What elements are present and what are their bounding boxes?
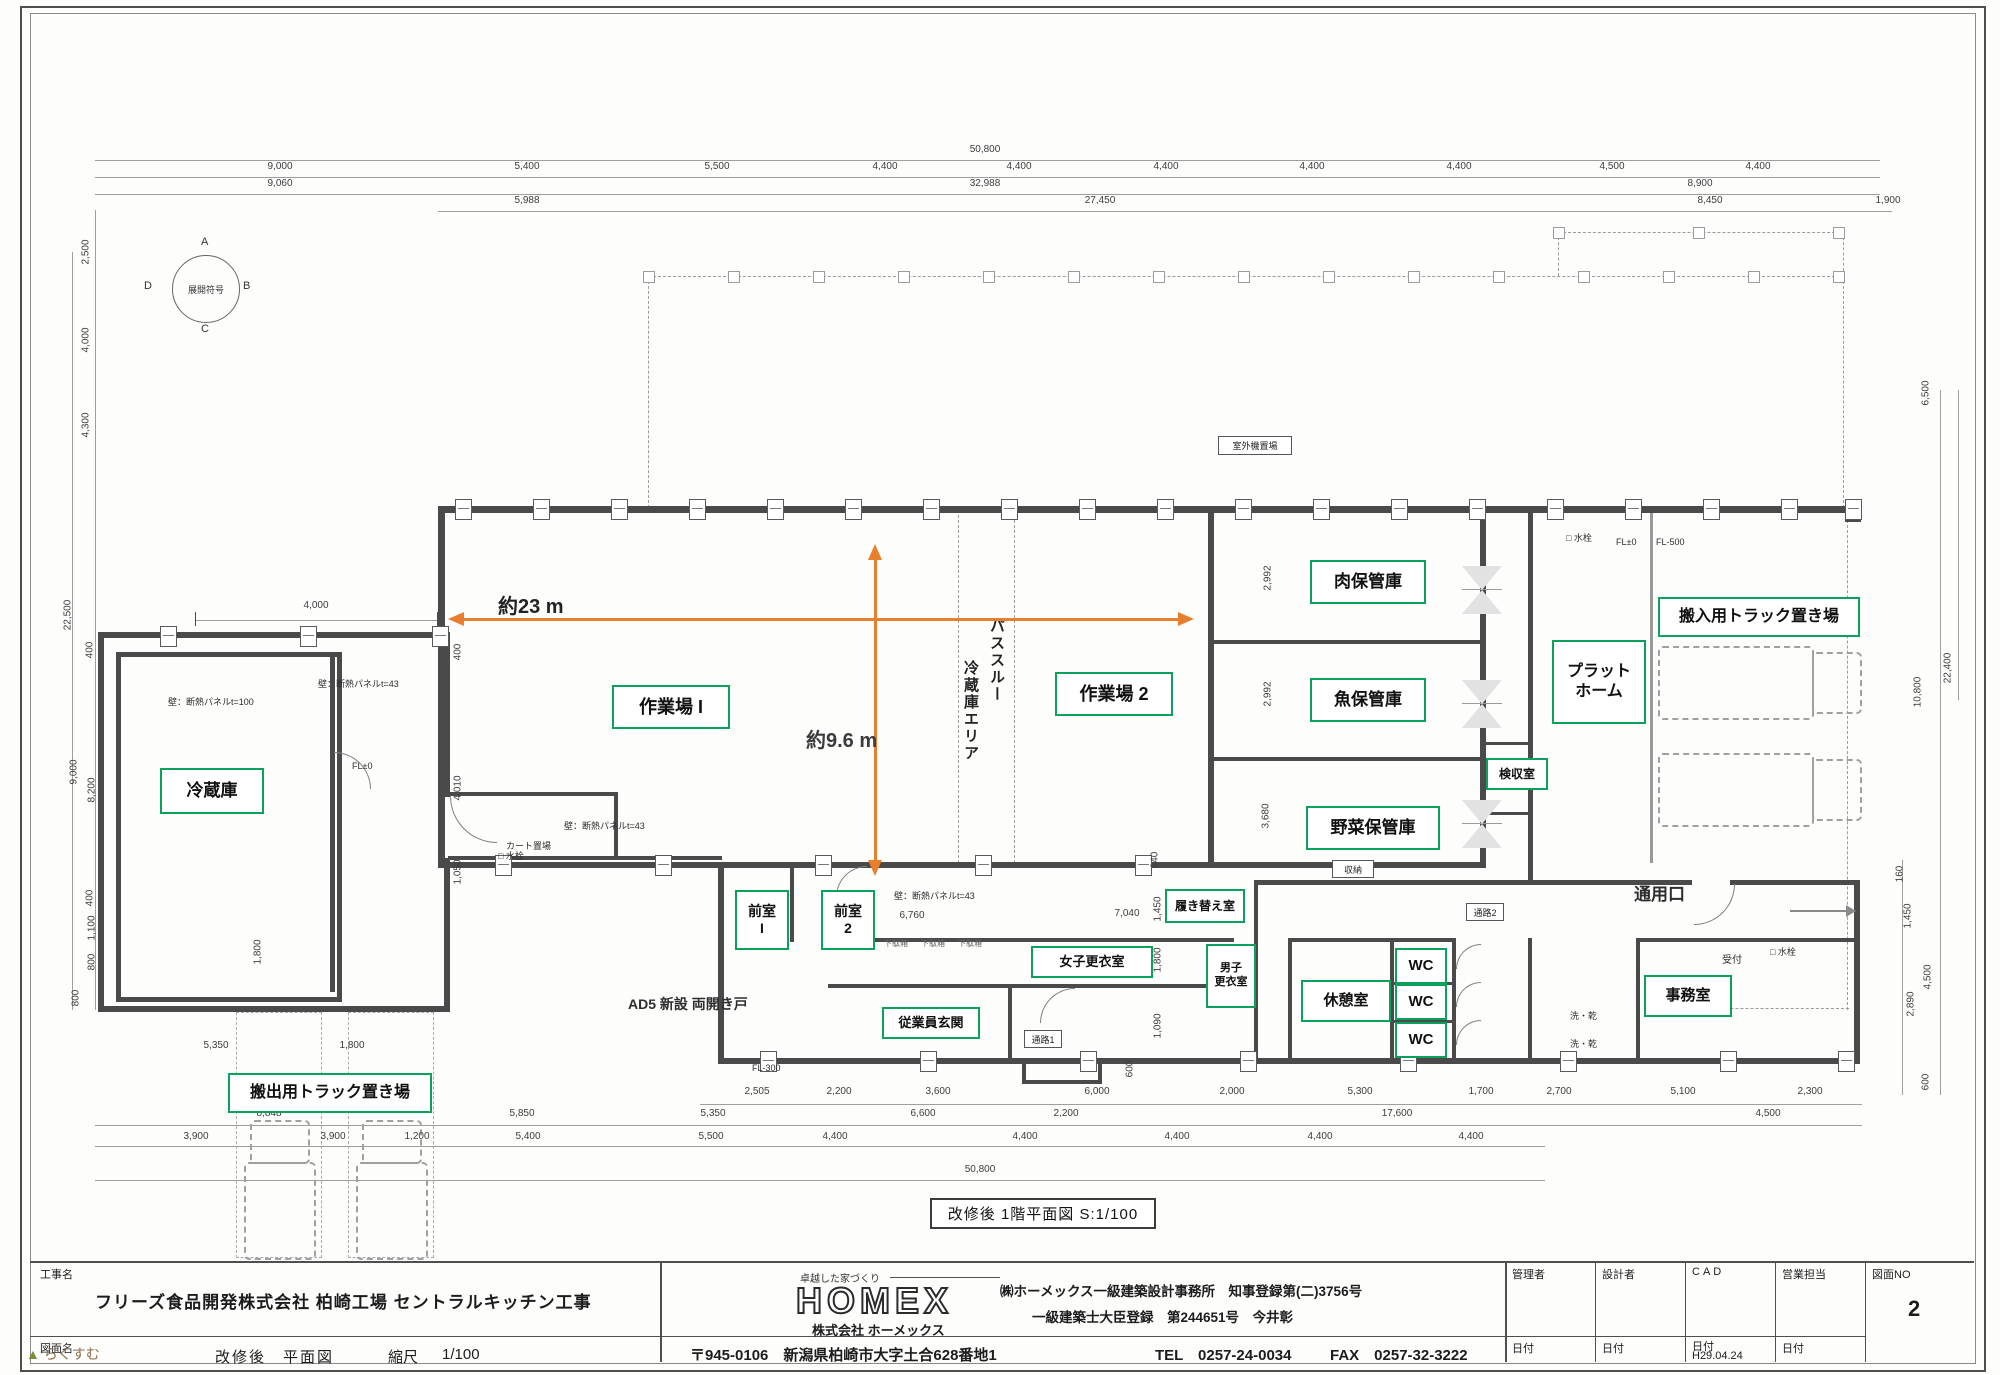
wall: [1636, 938, 1640, 1060]
wall: [98, 632, 104, 1012]
dimension-value: 4,400: [1446, 161, 1471, 172]
dimension-value: 1,050: [453, 859, 464, 884]
column-mark-icon: [1845, 499, 1862, 520]
canopy-post-icon: [983, 271, 995, 283]
dimension-value: 1,450: [1903, 903, 1914, 928]
column-mark-icon: [1560, 1051, 1577, 1072]
dimension-value: 50,800: [965, 1164, 996, 1175]
dock-edge-line: [1650, 513, 1653, 863]
drawing-sheet: 展開符号 A B C D 約23 m 約9.6 m パススルー 冷蔵庫エリア 改…: [0, 0, 2000, 1375]
dimension-value: 2,200: [826, 1086, 851, 1097]
dimension-line: [95, 1125, 1862, 1126]
dimension-value: 5,500: [698, 1131, 723, 1142]
dimension-value: 1,700: [1468, 1086, 1493, 1097]
room-label: 肉保管庫: [1310, 560, 1426, 604]
dimension-value: 400: [453, 644, 464, 661]
column-mark-icon: [1079, 499, 1096, 520]
wall: [438, 862, 1228, 868]
text-label: 壁：断熱パネルt=43: [564, 822, 645, 832]
project-name-label: 工事名: [40, 1266, 73, 1282]
dimension-line: [1902, 860, 1903, 1095]
dimension-value: 8,450: [1697, 195, 1722, 206]
canopy-post-icon: [813, 271, 825, 283]
canopy-post-icon: [1833, 227, 1845, 239]
column-mark-icon: [1240, 1051, 1257, 1072]
registration-line-2: 一級建築士大臣登録 第244651号 今井彰: [1032, 1306, 1293, 1326]
dimension-value: 1,100: [87, 915, 98, 940]
canopy-post-icon: [1323, 271, 1335, 283]
column-mark-icon: [689, 499, 706, 520]
dimension-value: 1,450: [1153, 896, 1164, 921]
pass-door-icon: [1462, 800, 1502, 824]
homex-logo: HOMEX: [796, 1280, 953, 1322]
dimension-value: 4,500: [1755, 1108, 1780, 1119]
dimension-value: 4,400: [1299, 161, 1324, 172]
text-label: □ 水栓: [498, 852, 524, 862]
room-label: 冷蔵庫: [160, 768, 264, 814]
dimension-value: 3,900: [320, 1131, 345, 1142]
truck-outline-icon: [356, 1162, 428, 1260]
drawing-caption: 改修後 1階平面図 S:1/100: [930, 1198, 1156, 1229]
wall: [790, 862, 794, 942]
tb-date-row-line: [1505, 1336, 1865, 1337]
column-mark-icon: [815, 855, 832, 876]
tb-col-line-4: [1865, 1261, 1866, 1362]
wall: [98, 632, 450, 638]
dimension-value: 5,500: [704, 161, 729, 172]
text-label: FL±0: [1616, 538, 1636, 548]
wall: [1008, 984, 1012, 1060]
dimension-value: 160: [1895, 866, 1906, 883]
dimension-value: 600: [1921, 1074, 1932, 1091]
room-label: 検収室: [1486, 758, 1548, 790]
height-measure-arrow: [874, 558, 877, 862]
dimension-value: 50,800: [970, 144, 1001, 155]
wall: [718, 862, 724, 1064]
room-label: 事務室: [1644, 975, 1732, 1017]
dimension-value: 1,800: [253, 939, 264, 964]
text-label: 壁：断熱パネルt=43: [318, 680, 399, 690]
pass-door-icon: [1462, 704, 1502, 728]
dimension-line: [700, 1104, 1862, 1105]
text-label: 通用口: [1634, 886, 1685, 905]
wall: [98, 1006, 450, 1012]
wall: [1528, 938, 1532, 1060]
width-measure-label: 約23 m: [498, 590, 564, 619]
tb-role-1: 管理者: [1512, 1266, 1545, 1282]
tb-date-1: 日付: [1512, 1340, 1534, 1356]
titleblock-divider-1: [660, 1261, 662, 1362]
dimension-value: 2,992: [1263, 681, 1274, 706]
dimension-value: 4,500: [1923, 964, 1934, 989]
room-label: 前室 I: [735, 890, 789, 950]
canopy-post-icon: [1153, 271, 1165, 283]
dimension-value: 4,500: [1599, 161, 1624, 172]
dimension-value: 5,400: [515, 1131, 540, 1142]
canopy-post-icon: [1408, 271, 1420, 283]
dimension-value: 32,988: [970, 178, 1001, 189]
dimension-value: 10,800: [1913, 677, 1924, 708]
dimension-value: 1,900: [1875, 195, 1900, 206]
text-label: FL±0: [352, 762, 372, 772]
canopy-post-icon: [898, 271, 910, 283]
company-address: 〒945-0106 新潟県柏崎市大字土合628番地1: [690, 1344, 997, 1365]
text-label: □ 水栓: [1770, 948, 1796, 958]
dimension-value: 3,600: [925, 1086, 950, 1097]
column-mark-icon: [1625, 499, 1642, 520]
room-label: 搬出用トラック置き場: [228, 1073, 432, 1113]
compass-c: C: [201, 323, 209, 335]
dimension-value: 1,800: [339, 1040, 364, 1051]
column-mark-icon: [455, 499, 472, 520]
truck-outline-icon: [362, 1120, 422, 1164]
wall: [1528, 513, 1533, 883]
room-label: 休憩室: [1301, 980, 1391, 1022]
canopy-post-icon: [1748, 271, 1760, 283]
column-mark-icon: [975, 855, 992, 876]
dashed-line: [1014, 515, 1015, 863]
dimension-value: 2,505: [744, 1086, 769, 1097]
slogan-underline: [890, 1277, 1000, 1278]
dimension-value: 6,500: [1921, 380, 1932, 405]
column-mark-icon: [655, 855, 672, 876]
text-label: 受付: [1722, 955, 1742, 966]
text-label: AD5 新設 両開き戸: [628, 997, 748, 1012]
text-label: 壁：断熱パネルt=43: [894, 892, 975, 902]
height-measure-label: 約9.6 m: [806, 724, 877, 753]
dimension-value: 4,400: [872, 161, 897, 172]
column-mark-icon: [1157, 499, 1174, 520]
compass-a: A: [201, 236, 208, 248]
wall: [828, 984, 1232, 988]
wall: [1288, 938, 1454, 942]
room-label: 搬入用トラック置き場: [1658, 597, 1860, 637]
wall: [1022, 1080, 1102, 1084]
dimension-value: 600: [1125, 1061, 1136, 1078]
dimension-value: 5,988: [514, 195, 539, 206]
tb-role-3: CAD: [1692, 1266, 1724, 1278]
dimension-value: 4,000: [303, 600, 328, 611]
dimension-value: 2,992: [1263, 565, 1274, 590]
column-mark-icon: [1781, 499, 1798, 520]
dimension-line: [1940, 390, 1941, 1095]
canopy-post-icon: [1493, 271, 1505, 283]
arrow-head-down-icon: [868, 860, 882, 876]
room-label: 作業場 I: [612, 685, 730, 729]
column-mark-icon: [1001, 499, 1018, 520]
room-label: 女子更衣室: [1031, 946, 1153, 978]
dimension-value: 22,400: [1943, 653, 1954, 684]
company-tel: TEL 0257-24-0034: [1155, 1344, 1291, 1365]
elevation-symbol: 展開符号: [172, 255, 240, 323]
truck-outline-icon: [1812, 759, 1862, 821]
canopy-post-icon: [643, 271, 655, 283]
dimension-line: [72, 252, 73, 1010]
sheet-no-label: 図面NO: [1872, 1266, 1911, 1282]
column-mark-icon: [767, 499, 784, 520]
column-mark-icon: [920, 1051, 937, 1072]
truck-outline-icon: [1658, 646, 1814, 720]
dimension-value: 6,000: [1084, 1086, 1109, 1097]
column-mark-icon: [611, 499, 628, 520]
dashed-line: [1843, 276, 1844, 508]
dimension-value: 640: [1150, 852, 1161, 869]
canopy-post-icon: [1068, 271, 1080, 283]
column-mark-icon: [1313, 499, 1330, 520]
pass-through-label-1: パススルー: [986, 618, 1007, 703]
dimension-value: 2,300: [1797, 1086, 1822, 1097]
dimension-value: 1,800: [1153, 947, 1164, 972]
canopy-post-icon: [1238, 271, 1250, 283]
area-label: 室外機置場: [1218, 436, 1292, 455]
truck-outline-icon: [1658, 753, 1814, 827]
wall: [195, 612, 196, 626]
titleblock-row-line: [30, 1336, 1507, 1337]
text-label: FL-500: [1656, 538, 1685, 548]
wall: [1288, 938, 1292, 1060]
dimension-value: 4,400: [1307, 1131, 1332, 1142]
sheet-no: 2: [1908, 1296, 1920, 1322]
tb-col-line-1: [1595, 1261, 1596, 1362]
wall: [1208, 513, 1214, 868]
room-label: 魚保管庫: [1310, 678, 1426, 722]
text-label: 下駄箱: [921, 940, 945, 949]
dimension-value: 2,890: [1906, 991, 1917, 1016]
dimension-value: 1,200: [404, 1131, 429, 1142]
project-name: フリーズ食品開発株式会社 柏崎工場 セントラルキッチン工事: [95, 1288, 592, 1313]
dimension-value: 3,900: [183, 1131, 208, 1142]
room-label: 従業員玄関: [882, 1007, 980, 1039]
text-label: 壁：断熱パネルt=100: [168, 698, 254, 708]
dimension-value: 4,300: [81, 412, 92, 437]
dimension-value: 9,060: [267, 178, 292, 189]
dim-bracket-4000: [195, 620, 437, 621]
wall: [448, 856, 722, 860]
column-mark-icon: [1469, 499, 1486, 520]
pass-door-icon: [1462, 590, 1502, 614]
dashed-line: [958, 515, 959, 863]
dimension-value: 27,450: [1085, 195, 1116, 206]
column-mark-icon: [300, 626, 317, 647]
dimension-value: 4,000: [81, 327, 92, 352]
canopy-post-icon: [1833, 271, 1845, 283]
arrow-head-right-icon: [1178, 612, 1194, 626]
room-label: 履き替え室: [1165, 889, 1245, 923]
dimension-value: 5,400: [514, 161, 539, 172]
dimension-value: 800: [71, 990, 82, 1007]
room-label: 作業場 2: [1055, 672, 1173, 716]
pass-door-icon: [1462, 680, 1502, 704]
text-label: 洗・乾: [1570, 1012, 1597, 1022]
column-mark-icon: [1720, 1051, 1737, 1072]
dimension-value: 4,400: [822, 1131, 847, 1142]
dimension-line: [95, 1146, 1545, 1147]
tb-col-line-2: [1685, 1261, 1686, 1362]
drawing-caption-text: 改修後 1階平面図 S:1/100: [948, 1203, 1138, 1224]
truck-outline-icon: [250, 1120, 310, 1164]
tb-date-2: 日付: [1602, 1340, 1624, 1356]
canopy-post-icon: [1663, 271, 1675, 283]
tb-date-4: 日付: [1782, 1340, 1804, 1356]
dimension-value: 4,010: [453, 775, 464, 800]
column-mark-icon: [432, 626, 449, 647]
dimension-value: 9,000: [267, 161, 292, 172]
text-label: 下駄箱: [958, 940, 982, 949]
dimension-value: 1,090: [1153, 1013, 1164, 1038]
column-mark-icon: [845, 499, 862, 520]
column-mark-icon: [1703, 499, 1720, 520]
drawing-name: 改修後 平面図: [215, 1346, 334, 1367]
dimension-value: 22,500: [63, 600, 74, 631]
wall: [1730, 880, 1860, 885]
column-mark-icon: [1838, 1051, 1855, 1072]
dimension-value: 2,000: [1219, 1086, 1244, 1097]
text-label: FL-300: [752, 1064, 781, 1074]
room-label: 前室 2: [821, 890, 875, 950]
dimension-value: 2,500: [81, 239, 92, 264]
dimension-value: 4,400: [1006, 161, 1031, 172]
canopy-post-icon: [1578, 271, 1590, 283]
room-label: 野菜保管庫: [1306, 806, 1440, 850]
arrow-head-up-icon: [868, 544, 882, 560]
dimension-line: [438, 211, 1892, 212]
canopy-post-icon: [1553, 227, 1565, 239]
area-label: 通路2: [1466, 903, 1504, 921]
pass-through-label-2: 冷蔵庫エリア: [960, 660, 981, 762]
wall: [444, 858, 450, 1010]
dimension-value: 400: [85, 890, 96, 907]
watermark-text: らくすむ: [44, 1346, 100, 1362]
dashed-line: [648, 276, 649, 508]
dimension-value: 8,200: [87, 777, 98, 802]
dimension-value: 800: [87, 954, 98, 971]
text-label: □ 水栓: [1566, 534, 1592, 544]
dimension-value: 4,400: [1153, 161, 1178, 172]
text-label: 洗・乾: [1570, 1040, 1597, 1050]
column-mark-icon: [1547, 499, 1564, 520]
dimension-value: 4,400: [1745, 161, 1770, 172]
text-label: 下駄箱: [884, 940, 908, 949]
room-label: WC: [1395, 984, 1447, 1020]
arrow-head-left-icon: [448, 612, 464, 626]
dimension-value: 4,400: [1012, 1131, 1037, 1142]
dimension-value: 4,400: [1164, 1131, 1189, 1142]
wall: [1214, 640, 1480, 644]
exit-direction-arrow-icon: [1790, 910, 1846, 912]
dimension-value: 9,000: [69, 759, 80, 784]
column-mark-icon: [160, 626, 177, 647]
dimension-value: 2,200: [1053, 1108, 1078, 1119]
dimension-value: 5,350: [700, 1108, 725, 1119]
watermark-icon: ▲: [26, 1346, 40, 1362]
titleblock-divider-2: [1505, 1261, 1507, 1362]
watermark: ▲ らくすむ: [26, 1344, 100, 1364]
company-fax: FAX 0257-32-3222: [1330, 1344, 1468, 1365]
wall: [1214, 757, 1480, 761]
room-label: プラット ホーム: [1552, 640, 1646, 724]
tb-role-2: 設計者: [1602, 1266, 1635, 1282]
canopy-post-icon: [1693, 227, 1705, 239]
wall: [444, 632, 450, 797]
dimension-value: 2,700: [1546, 1086, 1571, 1097]
area-label: 通路1: [1024, 1030, 1062, 1048]
scale-label: 縮尺: [388, 1346, 418, 1367]
dimension-value: 6,760: [899, 910, 924, 921]
company-name: 株式会社 ホーメックス: [812, 1320, 945, 1339]
tb-role-4: 営業担当: [1782, 1266, 1826, 1282]
compass-b: B: [243, 280, 250, 292]
column-mark-icon: [1391, 499, 1408, 520]
wall: [438, 506, 1862, 513]
dimension-value: 5,850: [509, 1108, 534, 1119]
registration-line-1: ㈱ホーメックス一級建築設計事務所 知事登録第(二)3756号: [1000, 1280, 1362, 1300]
column-mark-icon: [923, 499, 940, 520]
width-measure-arrow: [464, 618, 1180, 621]
dimension-value: 6,600: [910, 1108, 935, 1119]
tb-date-3-value: H29.04.24: [1692, 1350, 1743, 1362]
dimension-value: 8,900: [1687, 178, 1712, 189]
pass-door-icon: [1462, 824, 1502, 848]
room-label: WC: [1395, 948, 1447, 984]
elevation-symbol-label: 展開符号: [188, 283, 224, 296]
pass-door-icon: [1462, 566, 1502, 590]
dimension-value: 5,300: [1347, 1086, 1372, 1097]
scale-value: 1/100: [442, 1346, 480, 1363]
room-label: WC: [1395, 1022, 1447, 1058]
room-label: 男子 更衣室: [1206, 944, 1256, 1008]
dimension-value: 3,680: [1261, 803, 1272, 828]
truck-outline-icon: [244, 1162, 316, 1260]
wall: [1636, 938, 1856, 942]
dimension-value: 4,400: [1458, 1131, 1483, 1142]
titleblock-top-line: [30, 1261, 1974, 1263]
text-label: カート置場: [506, 842, 551, 852]
dimension-line: [1958, 390, 1959, 700]
dimension-value: 17,600: [1382, 1108, 1413, 1119]
tb-col-line-3: [1775, 1261, 1776, 1362]
compass-d: D: [144, 280, 152, 292]
column-mark-icon: [1080, 1051, 1097, 1072]
column-mark-icon: [533, 499, 550, 520]
wall: [437, 612, 438, 626]
area-label: 収納: [1332, 860, 1374, 878]
dimension-value: 7,040: [1114, 908, 1139, 919]
column-mark-icon: [1235, 499, 1252, 520]
dimension-value: 5,100: [1670, 1086, 1695, 1097]
wall: [1486, 742, 1530, 745]
dimension-value: 400: [85, 642, 96, 659]
canopy-post-icon: [728, 271, 740, 283]
wall: [1254, 880, 1486, 885]
dimension-line: [95, 194, 1880, 195]
dimension-value: 5,350: [203, 1040, 228, 1051]
truck-outline-icon: [1812, 652, 1862, 714]
